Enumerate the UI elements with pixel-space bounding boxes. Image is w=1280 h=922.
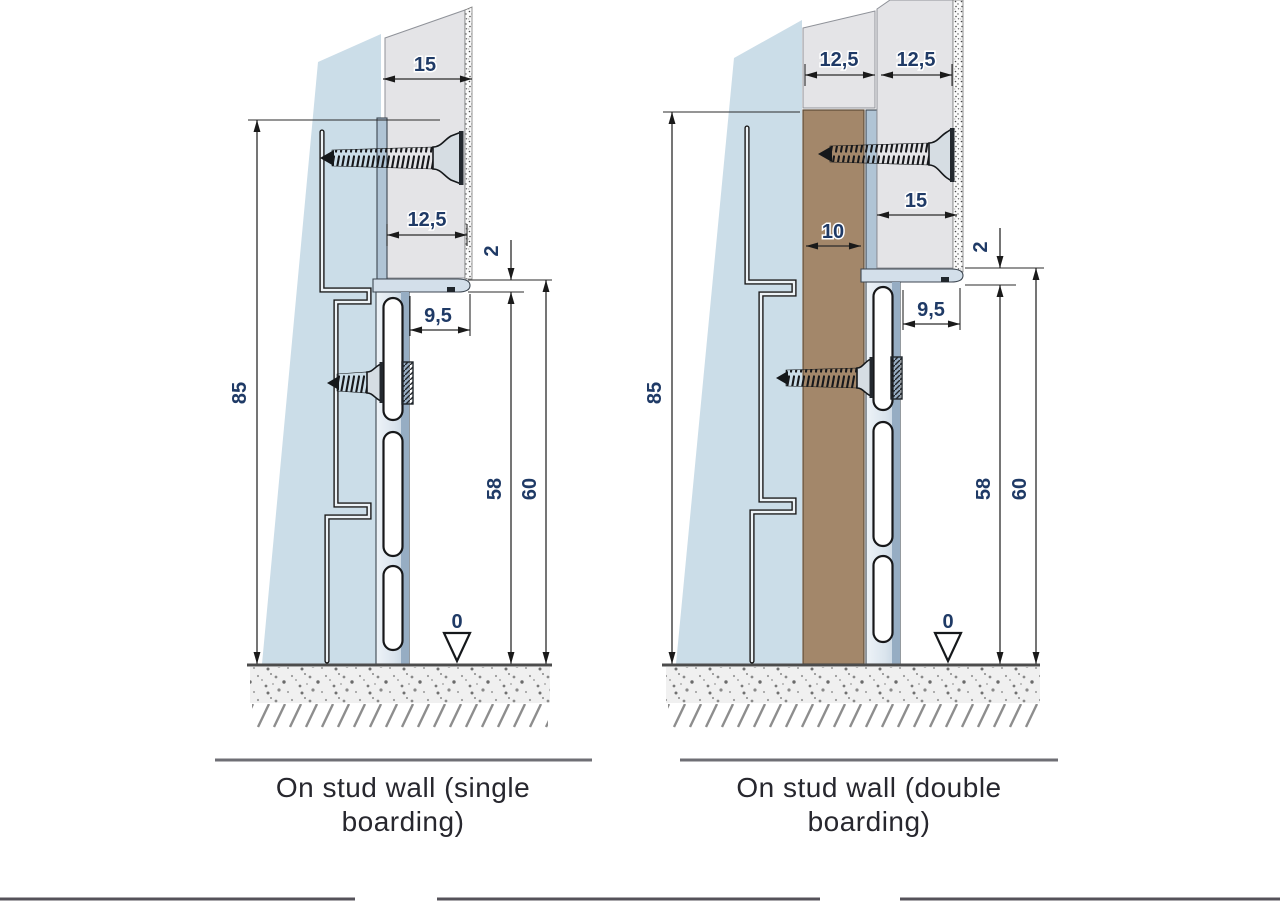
dim-label-12-5: 12,5 [408,209,447,231]
ground-hatch [668,704,1038,728]
screw-thread [830,143,929,165]
plaster-skim-stipple [465,7,472,279]
profile-slot [384,432,403,556]
dim-label-10: 10 [822,221,844,243]
profile-lip-notch [941,277,949,282]
screw-thread [332,147,433,169]
level-marker: 0 [935,611,961,661]
diagram-single-boarding: 15 12,5 2 9,5 85 58 60 0 [215,7,592,837]
level-triangle [935,633,961,661]
profile-slot [384,566,403,650]
screw-head-flange [459,131,464,185]
profile-lip [373,279,470,292]
ground-hatch [252,704,548,728]
caption-line1: On stud wall (single [276,772,530,803]
caption-line1: On stud wall (double [736,772,1001,803]
plasterboard-layer2 [877,0,953,268]
caption-line2: boarding) [342,806,465,837]
profile-slot [874,422,893,546]
level-marker: 0 [444,611,470,661]
level-triangle [444,633,470,661]
level-label: 0 [942,611,953,633]
profile-upper-strip [866,110,877,269]
screw-head-flange [870,357,874,398]
dim-label-85: 85 [229,382,251,404]
stud-wall-panel [676,20,802,664]
screw-head-flange [380,362,384,403]
technical-drawing: 15 12,5 2 9,5 85 58 60 0 [0,0,1280,922]
dim-label-58: 58 [973,478,995,500]
level-label: 0 [451,611,462,633]
screed-speckle [666,667,1040,703]
profile-slot [874,556,893,642]
dim-label-12-5-a: 12,5 [820,49,859,71]
screw-thread [786,368,857,388]
profile-slot [874,287,893,410]
screw-head-flange [950,128,955,182]
dim-label-58: 58 [484,478,506,500]
wall-anchor [402,362,413,404]
wall-anchor [891,357,902,399]
dim-label-2: 2 [481,245,503,256]
profile-slot [384,298,403,420]
screw-thread [337,372,367,393]
dim-label-15: 15 [905,190,927,212]
dim-label-12-5-b: 12,5 [897,49,936,71]
dim-label-15: 15 [414,54,436,76]
diagram-double-boarding: 12,5 12,5 15 10 2 9,5 85 58 60 [644,0,1058,837]
caption-line2: boarding) [808,806,931,837]
dim-label-2: 2 [970,241,992,252]
profile-upper-strip [377,118,387,279]
dim-label-9-5: 9,5 [424,305,452,327]
stud-wall-panel [262,34,381,664]
dim-label-9-5: 9,5 [917,299,945,321]
screed-speckle [250,667,550,703]
dim-label-85: 85 [644,382,666,404]
dim-label-60: 60 [519,478,541,500]
dim-label-60: 60 [1009,478,1031,500]
profile-lip-notch [447,287,455,292]
